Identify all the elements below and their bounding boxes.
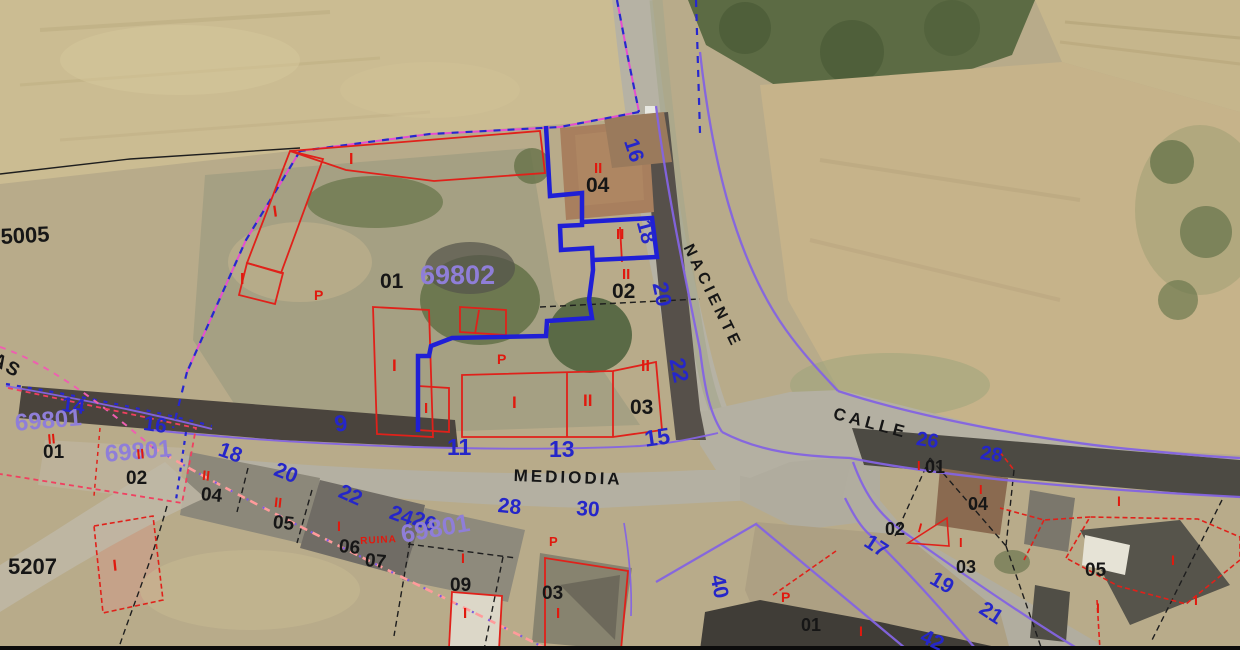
aerial-photo-layer (0, 0, 1240, 650)
cadastral-map-viewport[interactable]: 5005520704020103010204050607090301040203… (0, 0, 1240, 650)
image-bottom-edge (0, 646, 1240, 650)
map-canvas[interactable] (0, 0, 1240, 650)
